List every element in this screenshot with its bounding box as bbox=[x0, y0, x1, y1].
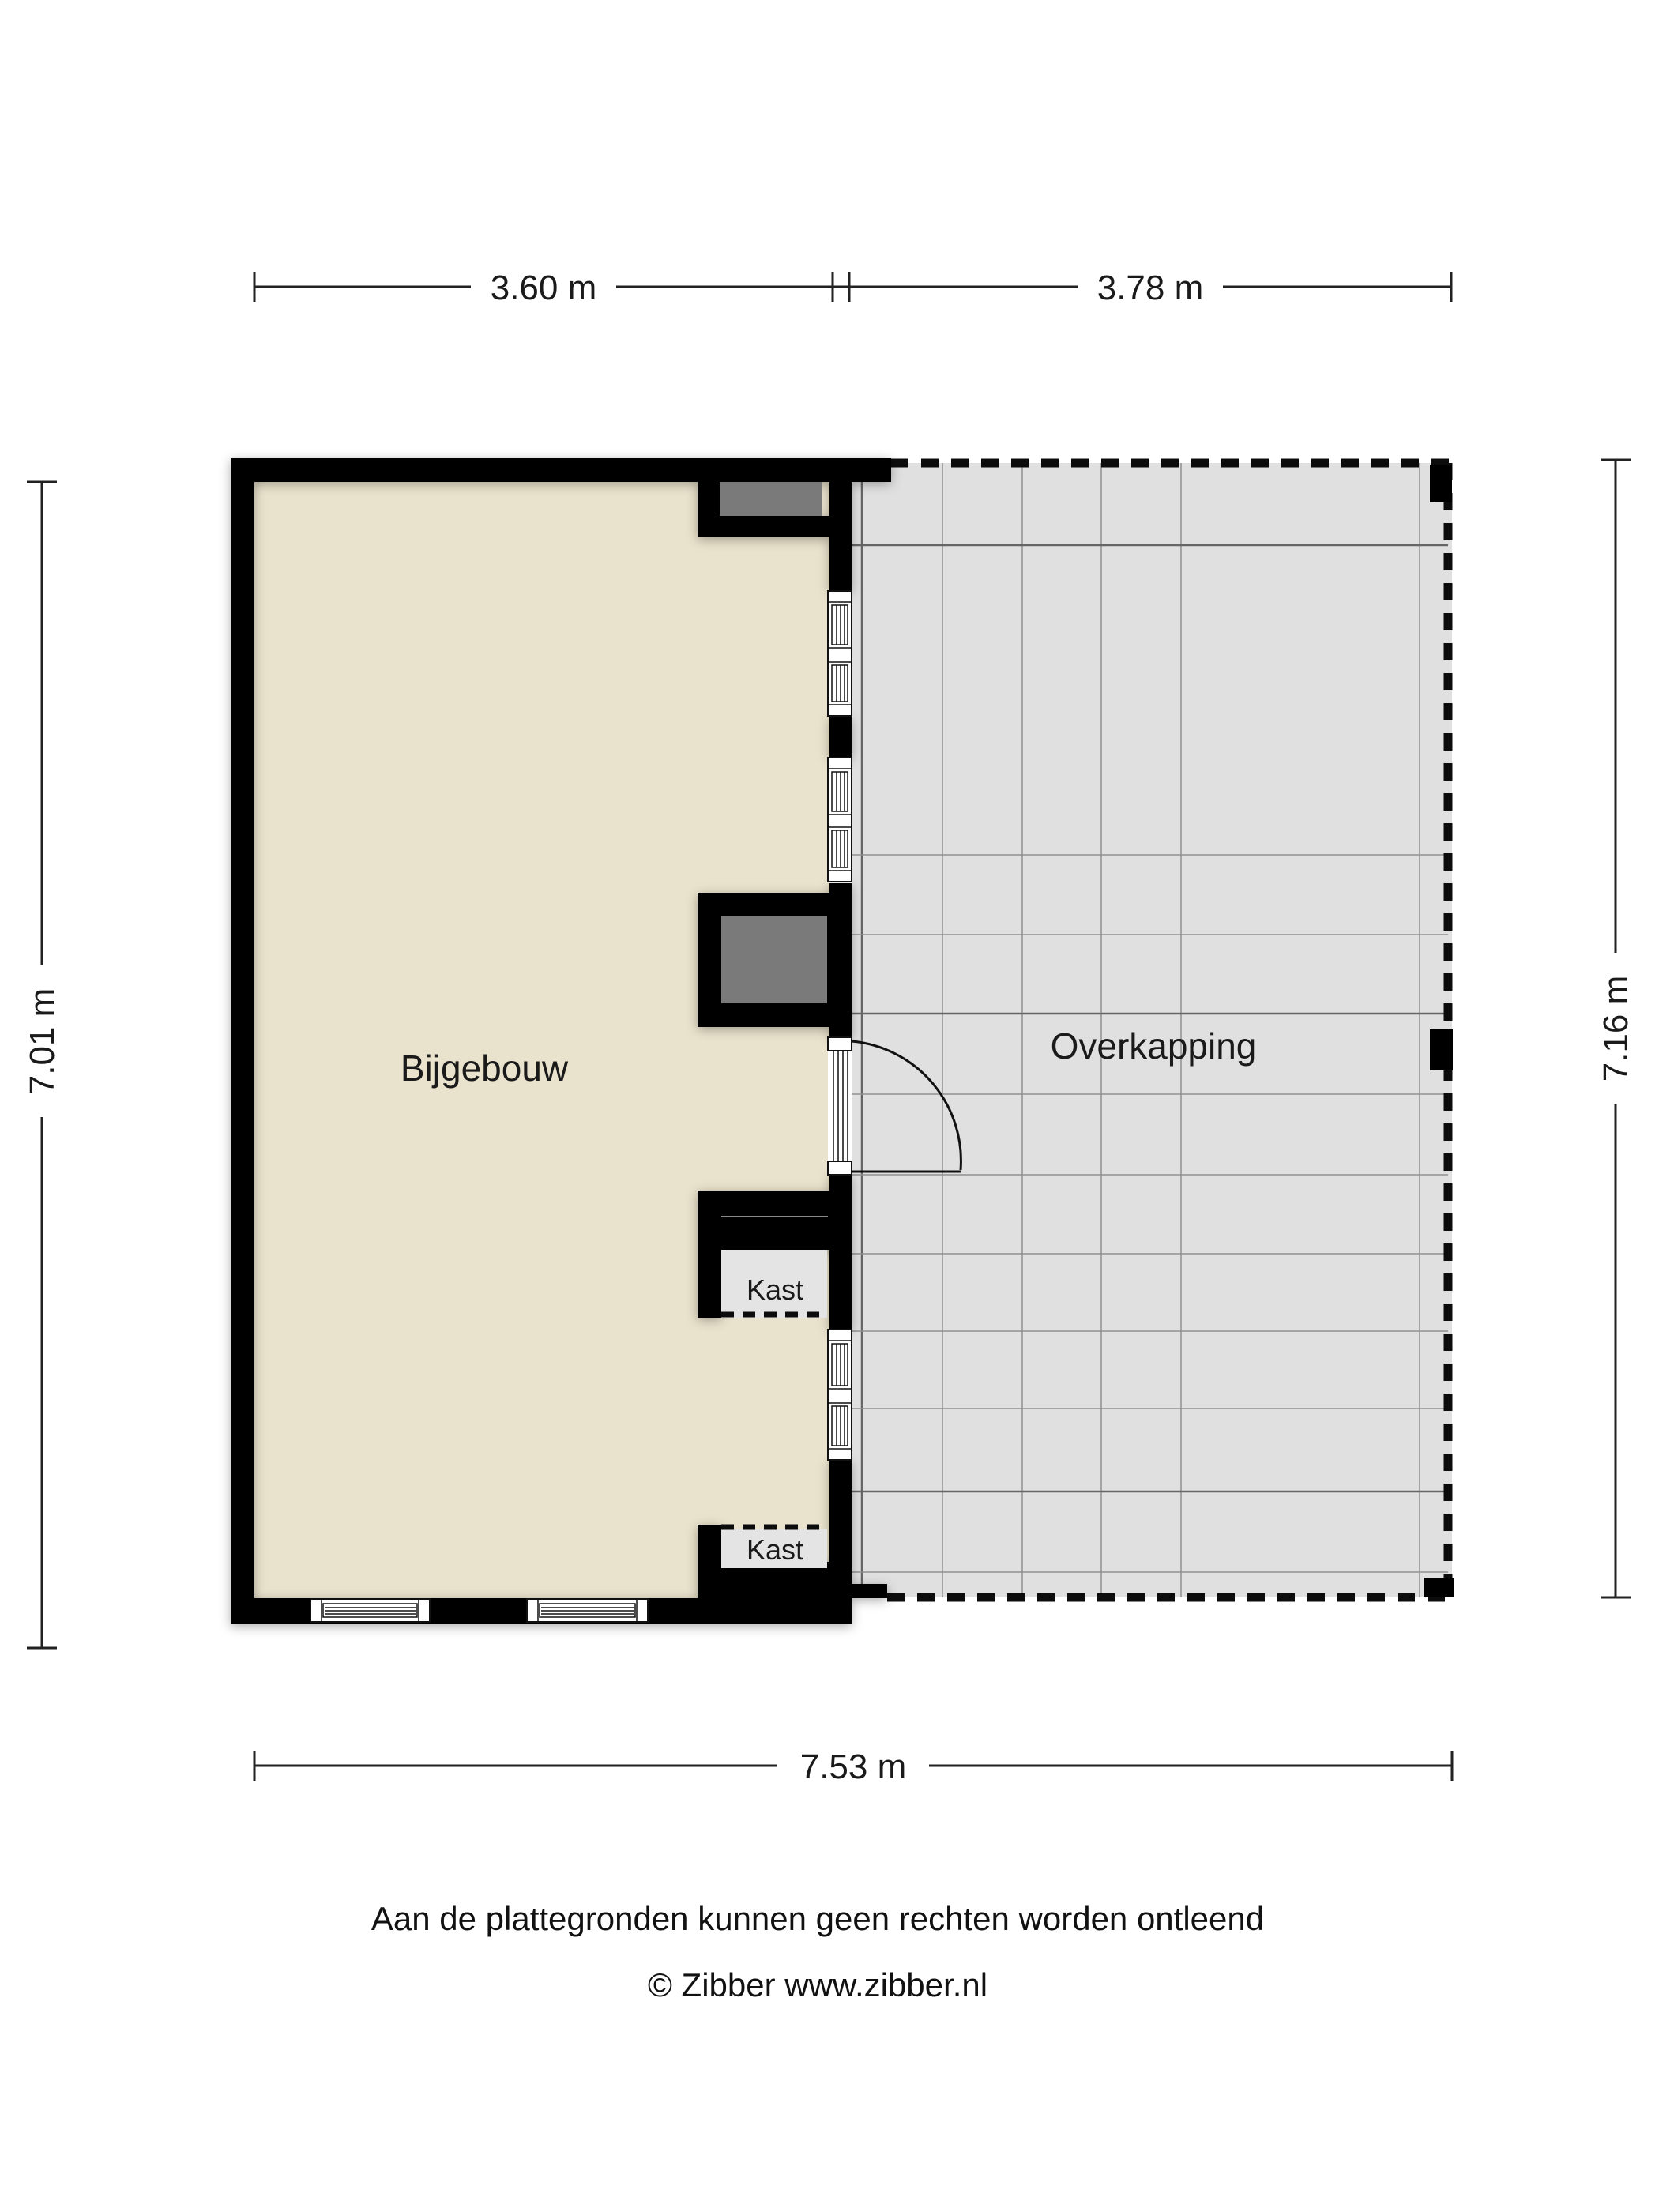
dimension-right: 7.16 m bbox=[1591, 460, 1640, 1597]
door-frame-bottom bbox=[828, 1161, 852, 1175]
wall-top bbox=[231, 458, 891, 482]
dim-left: 7.01 m bbox=[23, 988, 62, 1095]
canopy-post-bottom-right bbox=[1424, 1578, 1454, 1597]
overkapping-label: Overkapping bbox=[1051, 1025, 1257, 1066]
dim-top-left: 3.60 m bbox=[491, 269, 597, 307]
window-right-2 bbox=[828, 758, 852, 882]
bijgebouw-area bbox=[254, 482, 829, 1598]
wall-right-seg2 bbox=[829, 717, 852, 758]
chimney-gray bbox=[721, 916, 827, 1003]
wall-right-seg4 bbox=[829, 1175, 852, 1330]
dimension-left: 7.01 m bbox=[17, 482, 66, 1648]
window-bottom-1 bbox=[310, 1599, 430, 1622]
dimension-top: 3.60 m 3.78 m bbox=[254, 262, 1451, 311]
page: Bijgebouw Overkapping Kast Kast 3.60 m 3… bbox=[0, 0, 1659, 2212]
closet-top-wall-left bbox=[698, 1191, 721, 1318]
floorplan-svg: Bijgebouw Overkapping Kast Kast 3.60 m 3… bbox=[0, 0, 1659, 2212]
wall-stub-bottom-right bbox=[852, 1584, 887, 1598]
door-frame-top bbox=[828, 1037, 852, 1051]
footer-copyright: © Zibber www.zibber.nl bbox=[648, 1966, 987, 2003]
window-right-1 bbox=[828, 591, 852, 716]
bijgebouw-label: Bijgebouw bbox=[401, 1048, 569, 1089]
closet-bottom-label: Kast bbox=[747, 1533, 803, 1566]
closet-bottom-wall-left bbox=[698, 1525, 721, 1568]
wall-left bbox=[231, 458, 254, 1624]
window-bottom-2 bbox=[527, 1599, 648, 1622]
wall-right-seg5 bbox=[829, 1460, 852, 1624]
niche-gray bbox=[720, 482, 822, 516]
closet-top-label: Kast bbox=[747, 1273, 803, 1306]
window-right-3 bbox=[828, 1330, 852, 1460]
niche-wall-bottom bbox=[698, 516, 829, 537]
dim-bottom: 7.53 m bbox=[800, 1747, 907, 1786]
footer-disclaimer: Aan de plattegronden kunnen geen rechten… bbox=[371, 1900, 1264, 1937]
dimension-bottom: 7.53 m bbox=[254, 1741, 1452, 1790]
canopy-post-mid-right bbox=[1430, 1029, 1453, 1070]
bijgebouw-floor bbox=[254, 482, 829, 1598]
dim-right: 7.16 m bbox=[1597, 976, 1635, 1082]
canopy-post-top-right bbox=[1430, 465, 1452, 502]
dim-top-right: 3.78 m bbox=[1097, 269, 1204, 307]
wall-right-seg1 bbox=[829, 458, 852, 591]
